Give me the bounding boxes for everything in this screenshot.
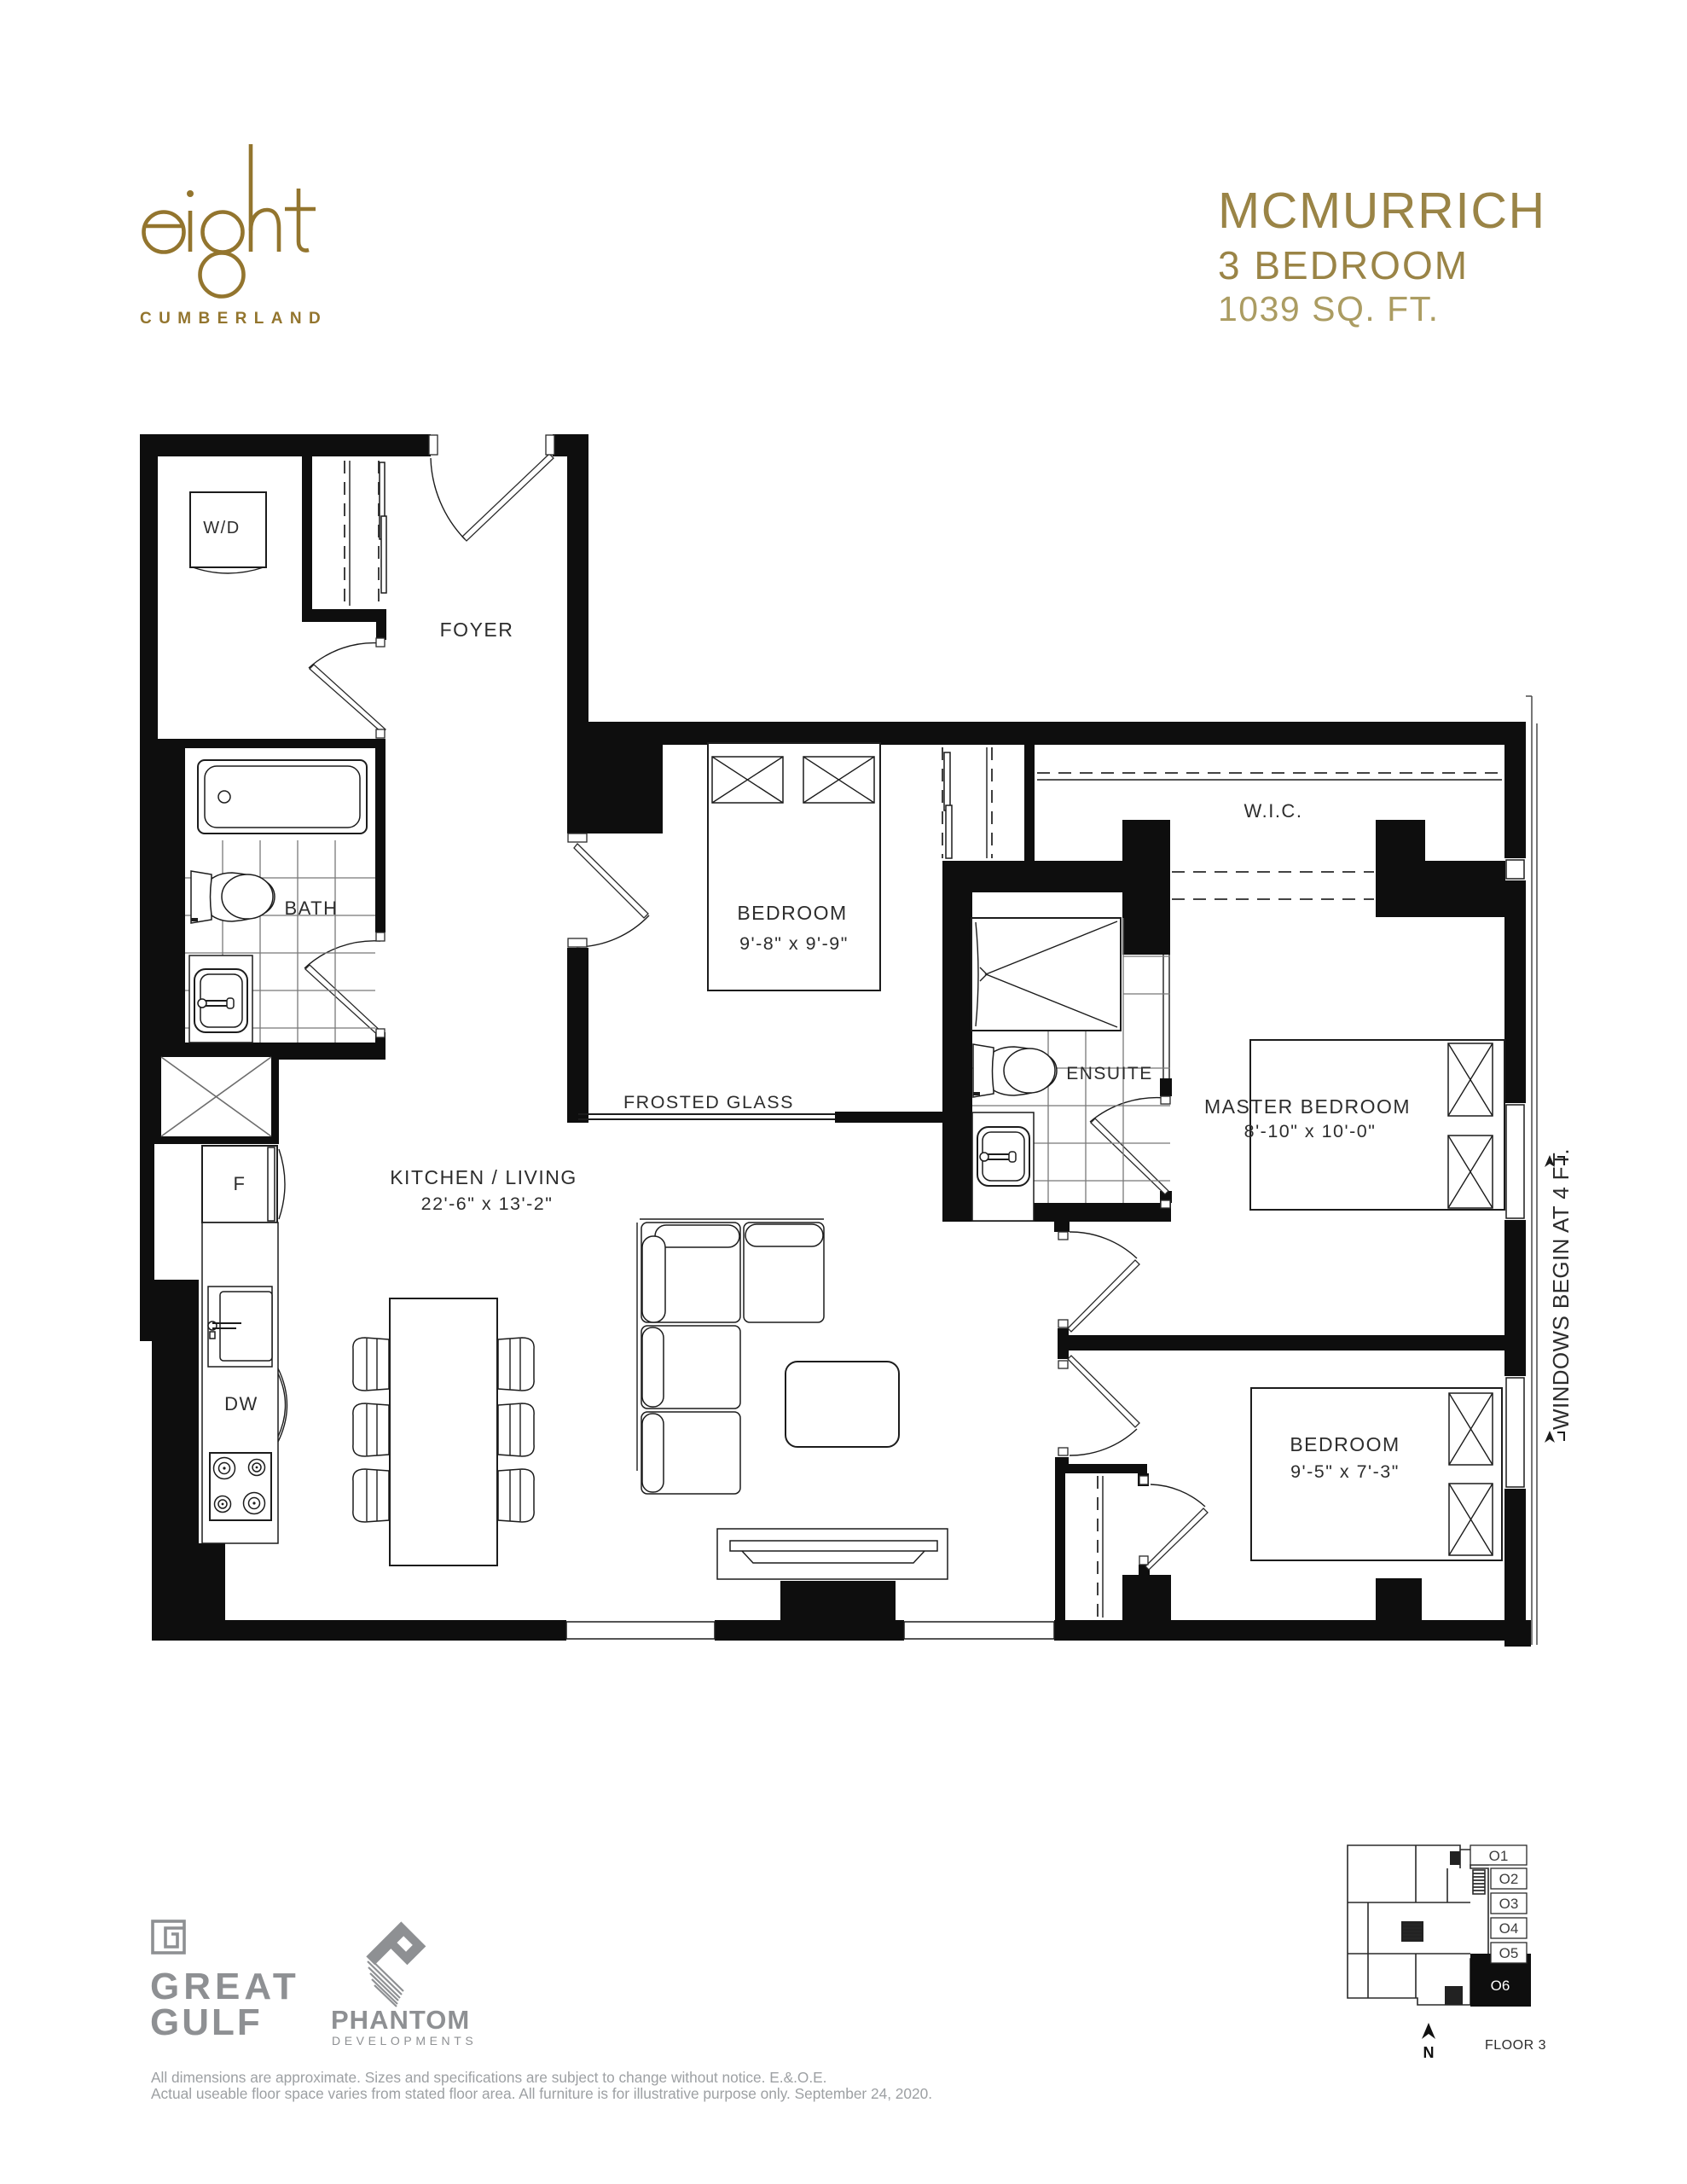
svg-text:N: N <box>1423 2044 1435 2061</box>
svg-text:KITCHEN / LIVING: KITCHEN / LIVING <box>390 1166 577 1188</box>
svg-text:1039 SQ. FT.: 1039 SQ. FT. <box>1218 289 1440 328</box>
svg-text:MCMURRICH: MCMURRICH <box>1218 183 1546 239</box>
svg-text:3 BEDROOM: 3 BEDROOM <box>1218 243 1469 288</box>
svg-text:BEDROOM: BEDROOM <box>737 902 847 924</box>
svg-text:FLOOR 3: FLOOR 3 <box>1485 2038 1546 2053</box>
svg-text:ENSUITE: ENSUITE <box>1066 1064 1153 1083</box>
svg-text:O3: O3 <box>1499 1896 1519 1912</box>
svg-text:PHANTOM: PHANTOM <box>331 2005 470 2035</box>
svg-text:FROSTED GLASS: FROSTED GLASS <box>623 1092 794 1112</box>
svg-text:F: F <box>234 1173 246 1194</box>
svg-text:O1: O1 <box>1489 1848 1509 1864</box>
svg-text:BATH: BATH <box>284 897 338 919</box>
svg-text:W.I.C.: W.I.C. <box>1244 800 1303 822</box>
svg-text:W/D: W/D <box>203 519 240 537</box>
svg-text:9'-5" x 7'-3": 9'-5" x 7'-3" <box>1290 1461 1400 1482</box>
svg-text:All dimensions are approximate: All dimensions are approximate. Sizes an… <box>151 2069 826 2086</box>
svg-text:O6: O6 <box>1491 1978 1510 1994</box>
svg-text:CUMBERLAND: CUMBERLAND <box>140 310 328 328</box>
svg-text:BEDROOM: BEDROOM <box>1290 1433 1400 1455</box>
svg-text:WINDOWS BEGIN AT 4 FT.: WINDOWS BEGIN AT 4 FT. <box>1548 1148 1574 1430</box>
svg-text:GULF: GULF <box>150 2001 263 2043</box>
svg-text:O5: O5 <box>1499 1945 1519 1961</box>
svg-text:22'-6" x 13'-2": 22'-6" x 13'-2" <box>421 1194 554 1214</box>
svg-text:DW: DW <box>224 1393 258 1414</box>
svg-text:9'-8" x 9'-9": 9'-8" x 9'-9" <box>739 933 849 954</box>
svg-text:MASTER BEDROOM: MASTER BEDROOM <box>1204 1095 1411 1118</box>
svg-text:O4: O4 <box>1499 1920 1519 1937</box>
svg-text:DEVELOPMENTS: DEVELOPMENTS <box>332 2034 477 2047</box>
svg-text:8'-10" x 10'-0": 8'-10" x 10'-0" <box>1244 1121 1377 1141</box>
svg-text:O2: O2 <box>1499 1871 1519 1887</box>
svg-text:FOYER: FOYER <box>440 619 514 641</box>
svg-text:Actual useable floor space var: Actual useable floor space varies from s… <box>151 2085 932 2102</box>
